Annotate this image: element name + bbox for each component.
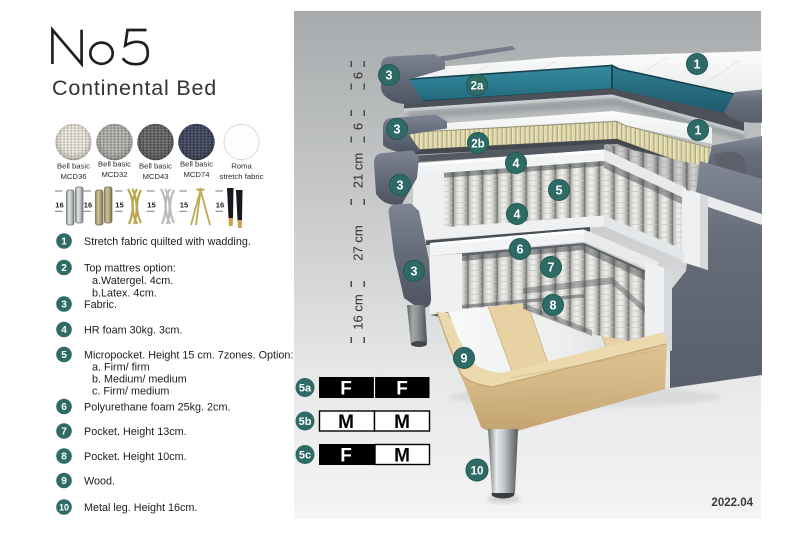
svg-text:2: 2 — [61, 263, 67, 274]
svg-text:Roma: Roma — [231, 162, 252, 171]
svg-text:10: 10 — [59, 502, 69, 512]
svg-text:16: 16 — [55, 201, 63, 210]
svg-text:9: 9 — [61, 476, 67, 487]
svg-text:7: 7 — [548, 261, 555, 275]
svg-text:5c: 5c — [299, 450, 311, 462]
svg-text:stretch fabric: stretch fabric — [219, 172, 263, 181]
svg-text:3: 3 — [397, 179, 404, 193]
svg-text:Top mattres option:: Top mattres option: — [84, 263, 176, 275]
svg-text:6: 6 — [517, 243, 524, 257]
svg-text:7: 7 — [61, 427, 67, 438]
svg-text:15: 15 — [180, 201, 189, 210]
svg-text:4: 4 — [514, 208, 521, 222]
svg-text:16: 16 — [216, 201, 224, 210]
svg-text:5a: 5a — [299, 383, 312, 395]
svg-text:HR foam 30kg. 3cm.: HR foam 30kg. 3cm. — [84, 325, 182, 337]
svg-text:Pocket. Height 10cm.: Pocket. Height 10cm. — [84, 451, 187, 463]
svg-text:4: 4 — [61, 325, 67, 336]
svg-text:8: 8 — [61, 452, 67, 463]
svg-text:Wood.: Wood. — [84, 476, 115, 488]
svg-text:1: 1 — [694, 58, 701, 72]
svg-text:15: 15 — [115, 201, 124, 210]
svg-text:MCD36: MCD36 — [60, 172, 86, 181]
svg-text:9: 9 — [461, 352, 468, 366]
svg-text:F: F — [340, 446, 352, 467]
svg-text:MCD32: MCD32 — [101, 170, 127, 179]
svg-text:a. Firm/ firm: a. Firm/ firm — [92, 362, 150, 374]
svg-text:M: M — [394, 446, 410, 467]
svg-text:Metal leg. Height 16cm.: Metal leg. Height 16cm. — [84, 502, 197, 514]
svg-text:Fabric.: Fabric. — [84, 299, 117, 311]
svg-text:2b: 2b — [471, 139, 484, 151]
svg-text:3: 3 — [394, 123, 401, 137]
svg-text:1: 1 — [695, 124, 702, 138]
svg-text:16 cm: 16 cm — [351, 294, 366, 329]
svg-text:a.Watergel. 4cm.: a.Watergel. 4cm. — [92, 275, 173, 287]
svg-text:Bell basic: Bell basic — [139, 162, 172, 171]
svg-text:5: 5 — [556, 184, 563, 198]
svg-text:27 cm: 27 cm — [351, 225, 366, 260]
svg-text:F: F — [396, 379, 408, 400]
svg-text:M: M — [338, 412, 354, 433]
svg-text:b.Latex. 4cm.: b.Latex. 4cm. — [92, 288, 157, 300]
svg-text:MCD74: MCD74 — [183, 170, 210, 179]
svg-text:Polyurethane foam 25kg. 2cm.: Polyurethane foam 25kg. 2cm. — [84, 402, 230, 414]
svg-text:2a: 2a — [471, 81, 484, 93]
svg-text:Stretch fabric quilted with wa: Stretch fabric quilted with wadding. — [84, 236, 251, 248]
svg-text:10: 10 — [471, 466, 484, 478]
svg-text:6: 6 — [61, 402, 67, 413]
svg-text:4: 4 — [513, 157, 520, 171]
svg-text:5: 5 — [61, 350, 67, 361]
svg-text:c. Firm/ medium: c. Firm/ medium — [92, 386, 169, 398]
svg-text:F: F — [340, 379, 352, 400]
svg-text:2022.04: 2022.04 — [711, 497, 753, 509]
svg-text:MCD43: MCD43 — [142, 172, 168, 181]
svg-text:b. Medium/ medium: b. Medium/ medium — [92, 374, 187, 386]
svg-text:Bell basic: Bell basic — [57, 162, 90, 171]
svg-text:16: 16 — [84, 201, 92, 210]
svg-text:8: 8 — [550, 299, 557, 313]
svg-text:6: 6 — [351, 72, 366, 79]
svg-text:21 cm: 21 cm — [351, 153, 366, 188]
svg-text:15: 15 — [147, 201, 156, 210]
svg-text:3: 3 — [61, 300, 67, 311]
svg-text:Micropocket. Height 15 cm. 7zo: Micropocket. Height 15 cm. 7zones. Optio… — [84, 350, 293, 362]
svg-text:3: 3 — [411, 265, 418, 279]
svg-text:6: 6 — [351, 123, 366, 130]
svg-text:Bell basic: Bell basic — [180, 160, 213, 169]
svg-text:Bell basic: Bell basic — [98, 160, 131, 169]
svg-text:Pocket. Height 13cm.: Pocket. Height 13cm. — [84, 426, 187, 438]
svg-text:Continental Bed: Continental Bed — [52, 76, 217, 100]
svg-text:3: 3 — [386, 69, 393, 83]
svg-text:1: 1 — [61, 237, 67, 248]
svg-text:M: M — [394, 412, 410, 433]
svg-text:5b: 5b — [299, 416, 312, 428]
